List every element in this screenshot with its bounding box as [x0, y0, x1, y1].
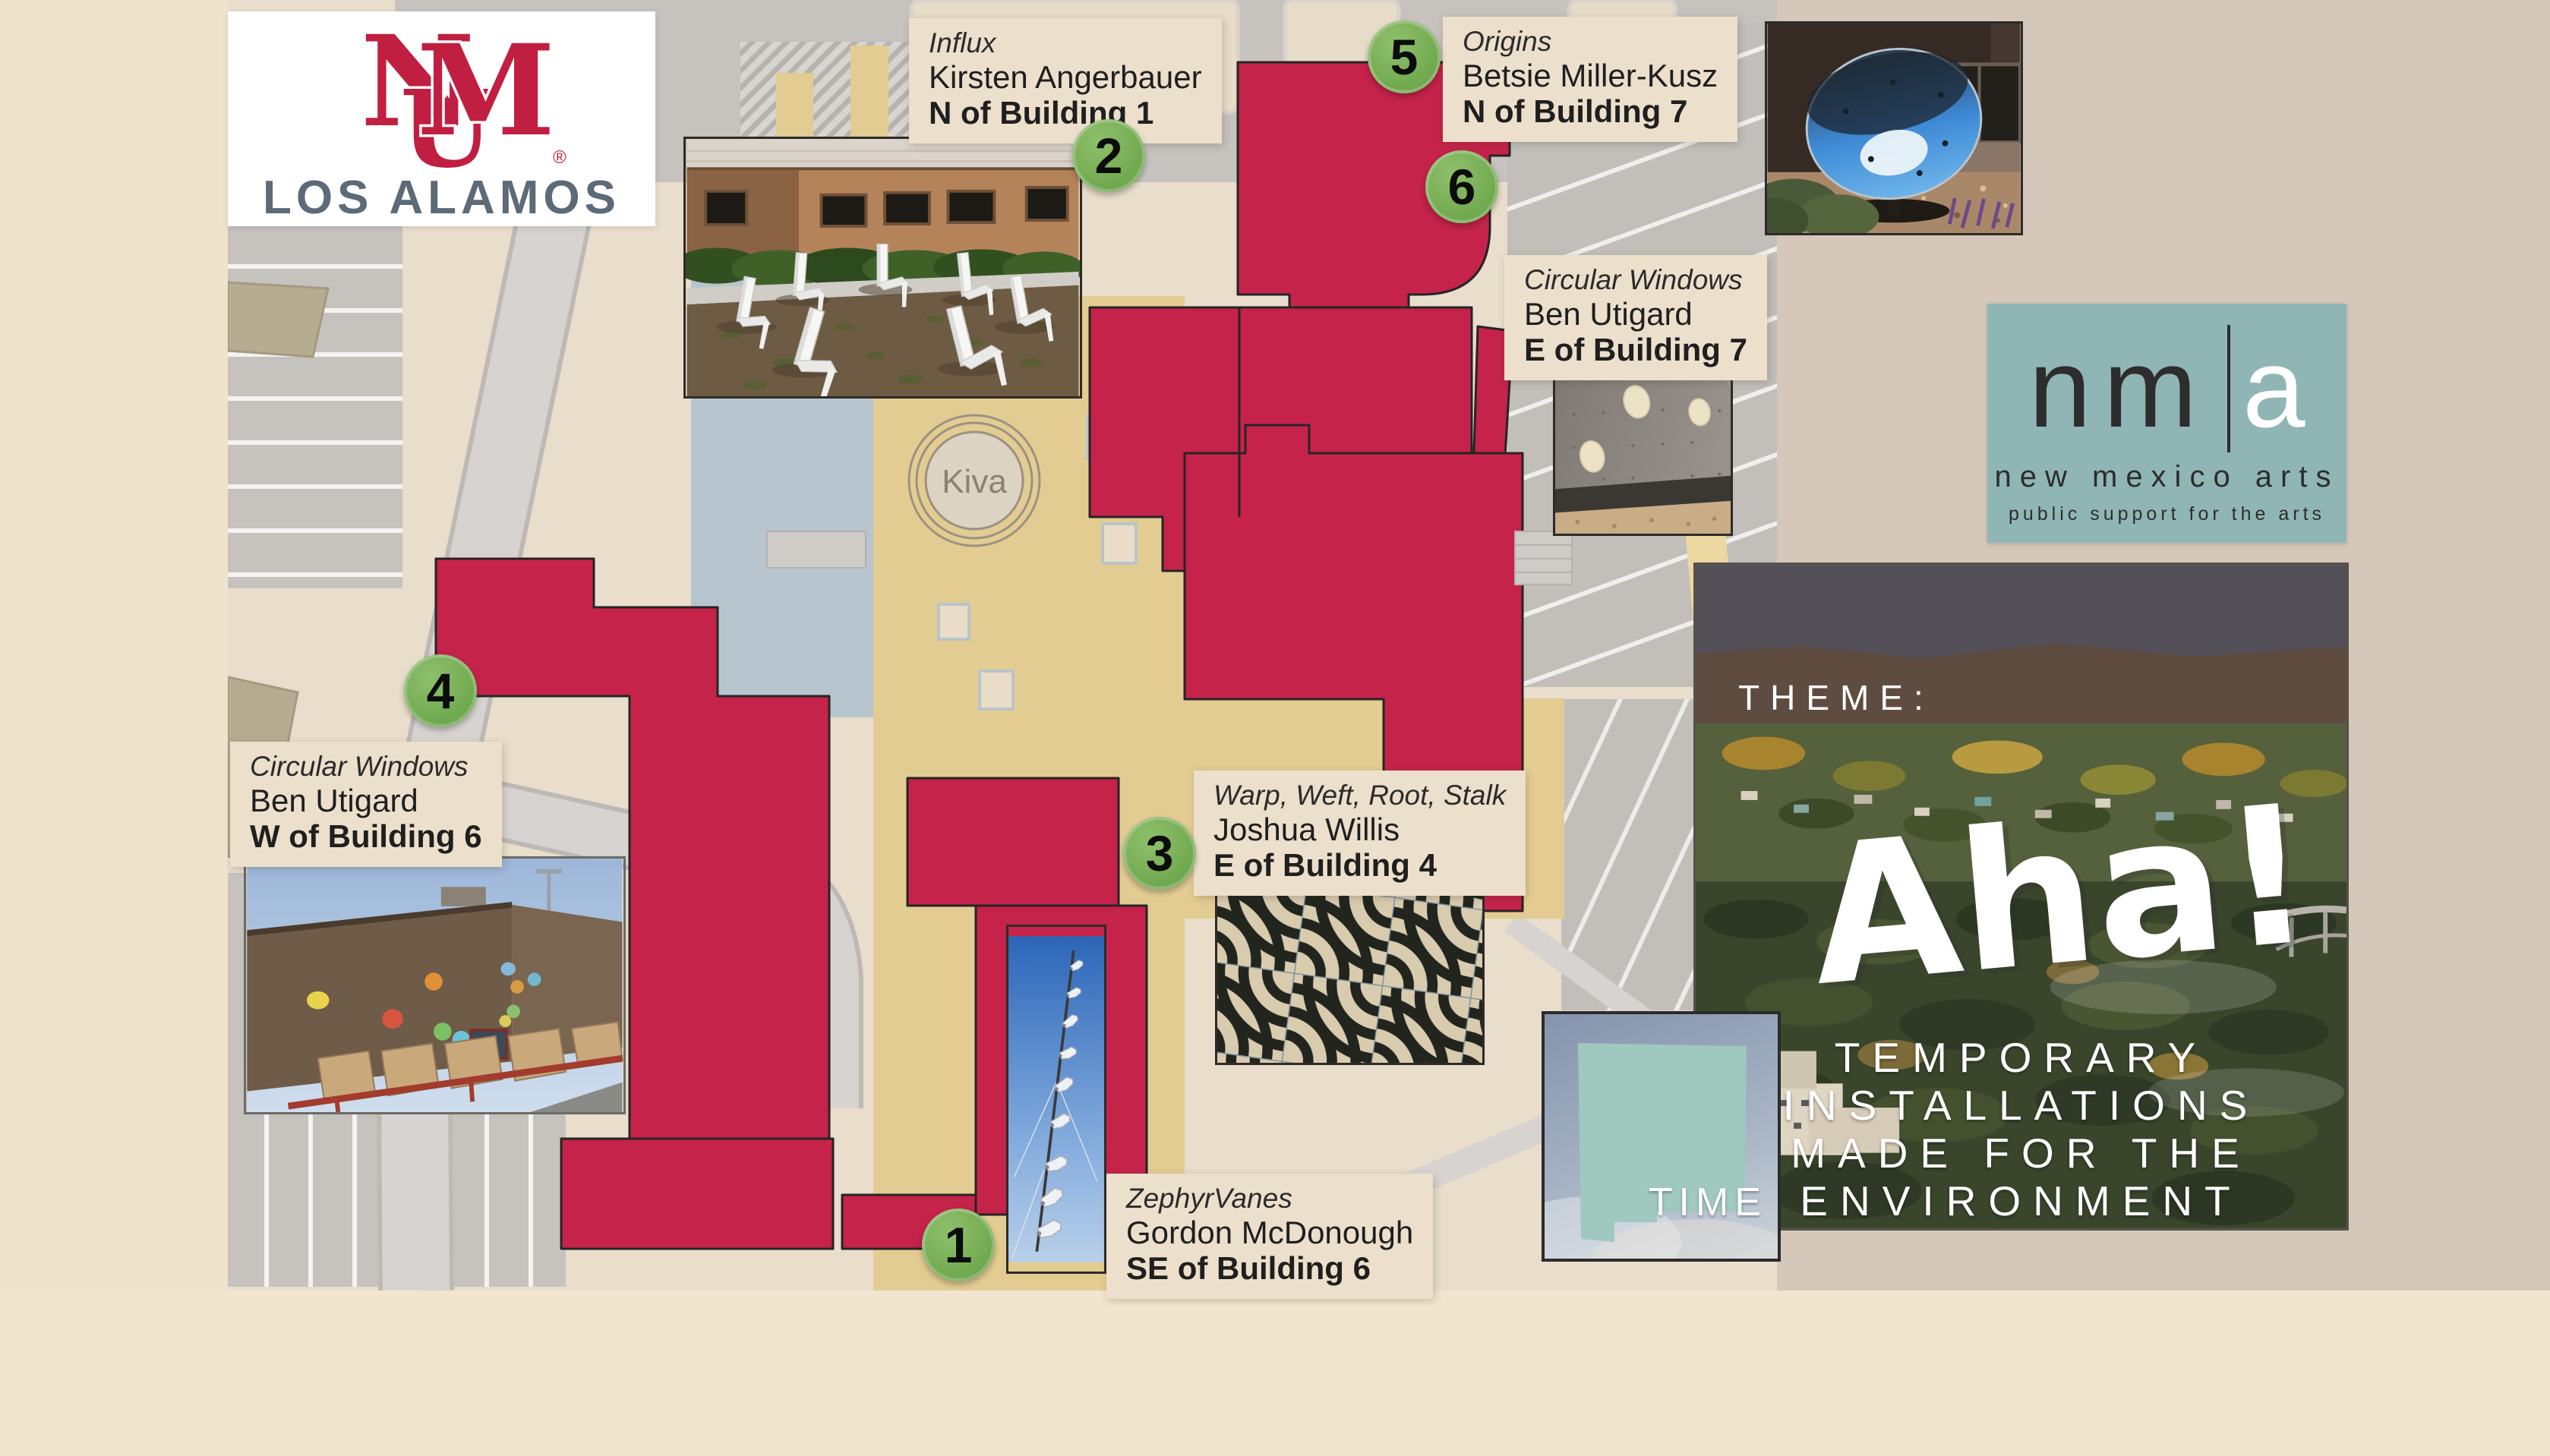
- map-marker-1: 1: [922, 1209, 995, 1281]
- planter: [980, 671, 1013, 709]
- planter: [939, 604, 969, 639]
- artwork-title: Circular Windows: [1524, 264, 1747, 296]
- building-southwest: [561, 1139, 833, 1249]
- artist-name: Ben Utigard: [250, 783, 482, 818]
- marker-number: 6: [1448, 158, 1476, 216]
- kiva-label: Kiva: [942, 463, 1007, 500]
- artist-name: Betsie Miller-Kusz: [1463, 58, 1718, 93]
- unm-monogram: N U M ®: [228, 11, 655, 171]
- campus-wordmark: LOS ALAMOS: [228, 171, 655, 225]
- artwork-title: ZephyrVanes: [1126, 1183, 1413, 1215]
- photo-influx: [683, 137, 1082, 399]
- photo-origins: [1765, 21, 2023, 235]
- label-origins: Origins Betsie Miller-Kusz N of Building…: [1443, 17, 1737, 142]
- nma-tagline: public support for the arts: [1987, 503, 2346, 525]
- courtyard-steps: [767, 531, 866, 568]
- theme-line: ENVIRONMENT: [1696, 1177, 2346, 1225]
- nma-name: new mexico arts: [1987, 460, 2346, 494]
- artwork-title: Warp, Weft, Root, Stalk: [1213, 780, 1506, 812]
- marker-number: 1: [945, 1216, 973, 1274]
- unm-monogram-m: M: [417, 17, 556, 164]
- nma-letter-a: a: [2242, 324, 2305, 453]
- marker-number: 5: [1390, 28, 1419, 86]
- new-mexico-arts-logo: nm a new mexico arts public support for …: [1987, 304, 2346, 543]
- bottom-backdrop: [0, 1291, 2550, 1456]
- artist-name: Ben Utigard: [1524, 296, 1747, 332]
- artwork-location: N of Building 1: [929, 95, 1202, 131]
- theme-line: MADE FOR THE: [1696, 1130, 2346, 1177]
- label-circular-windows-e: Circular Windows Ben Utigard E of Buildi…: [1504, 255, 1767, 380]
- artist-name: Joshua Willis: [1213, 812, 1506, 847]
- nma-divider: [2227, 325, 2230, 452]
- photo-circular-windows-w: [244, 856, 626, 1114]
- photo-warp-weft: [1215, 870, 1485, 1065]
- marker-number: 2: [1095, 127, 1123, 184]
- label-circular-windows-w: Circular Windows Ben Utigard W of Buildi…: [230, 742, 502, 867]
- kiva: Kiva: [909, 415, 1040, 546]
- artwork-location: SE of Building 6: [1126, 1250, 1413, 1286]
- photo-zephyrvanes: [1006, 925, 1106, 1274]
- marker-number: 4: [427, 662, 455, 720]
- registered-mark-icon: ®: [553, 147, 566, 168]
- label-zephyrvanes: ZephyrVanes Gordon McDonough SE of Build…: [1106, 1174, 1433, 1299]
- outbuilding: [228, 282, 328, 357]
- theme-panel: THEME: Aha! TEMPORARY INSTALLATIONS MADE…: [1693, 563, 2349, 1231]
- label-warp-weft-root-stalk: Warp, Weft, Root, Stalk Joshua Willis E …: [1194, 771, 1526, 896]
- artwork-title: Circular Windows: [250, 751, 482, 783]
- theme-line: INSTALLATIONS: [1696, 1082, 2346, 1130]
- artwork-location: E of Building 4: [1213, 847, 1506, 883]
- theme-word: Aha!: [1802, 764, 2320, 1029]
- theme-line: TEMPORARY: [1696, 1034, 2346, 1082]
- campus-art-map-poster: Kiva N U M ®: [0, 0, 2550, 1456]
- time-word: TIME: [1649, 1180, 1767, 1225]
- theme-description: TEMPORARY INSTALLATIONS MADE FOR THE ENV…: [1696, 1034, 2346, 1225]
- planter: [1103, 524, 1136, 563]
- nma-letters: nm: [2029, 324, 2210, 453]
- time-logo-panel: TIME: [1542, 1011, 1781, 1262]
- map-marker-6: 6: [1425, 150, 1498, 223]
- label-influx: Influx Kirsten Angerbauer N of Building …: [909, 18, 1222, 143]
- artwork-location: W of Building 6: [250, 818, 482, 854]
- unm-los-alamos-logo: N U M ® LOS ALAMOS: [228, 11, 655, 226]
- theme-label: THEME:: [1738, 677, 1934, 718]
- artwork-location: N of Building 7: [1463, 93, 1718, 129]
- artwork-title: Influx: [929, 27, 1202, 59]
- map-marker-2: 2: [1072, 119, 1145, 192]
- marker-number: 3: [1146, 824, 1174, 882]
- artwork-location: E of Building 7: [1524, 332, 1747, 367]
- building-4: [907, 778, 1119, 906]
- artist-name: Kirsten Angerbauer: [929, 59, 1202, 95]
- map-marker-5: 5: [1368, 20, 1441, 93]
- map-marker-4: 4: [404, 654, 477, 727]
- artist-name: Gordon McDonough: [1126, 1215, 1413, 1250]
- map-marker-3: 3: [1123, 817, 1196, 890]
- artwork-title: Origins: [1463, 26, 1718, 58]
- stairs: [1515, 531, 1572, 585]
